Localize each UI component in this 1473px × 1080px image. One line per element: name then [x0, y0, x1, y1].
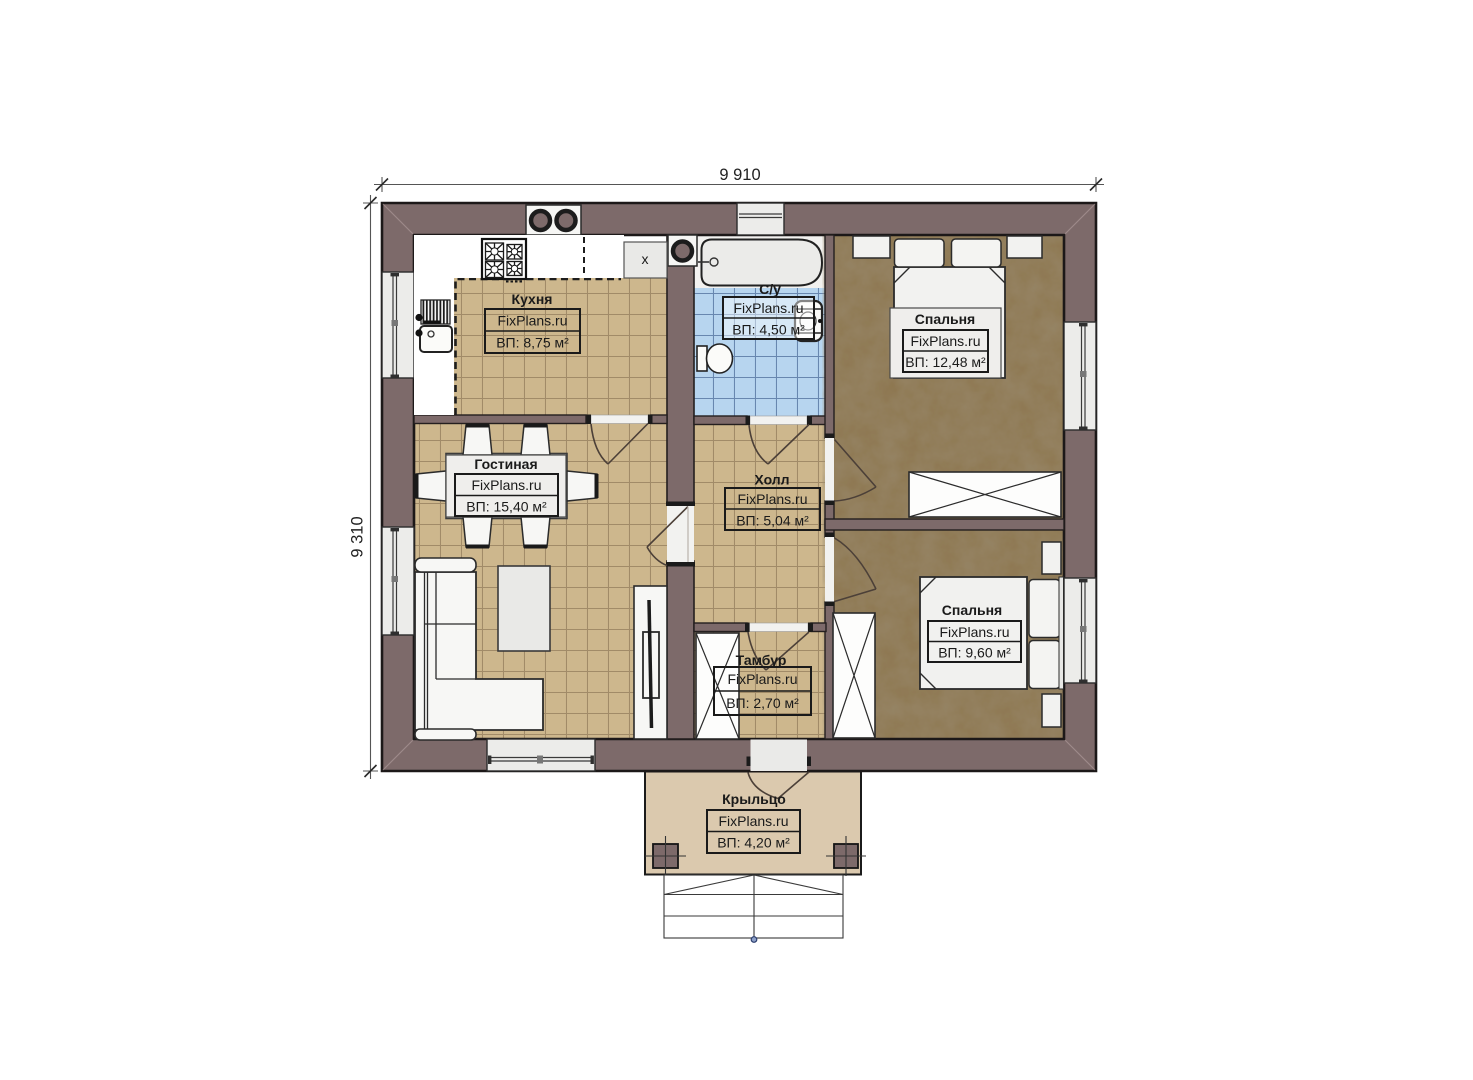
svg-text:9 310: 9 310 [349, 516, 367, 557]
svg-text:ВП: 4,20 м²: ВП: 4,20 м² [717, 835, 790, 851]
svg-text:Гостиная: Гостиная [474, 456, 537, 472]
svg-text:FixPlans.ru: FixPlans.ru [939, 624, 1009, 640]
svg-text:FixPlans.ru: FixPlans.ru [497, 313, 567, 329]
svg-text:Тамбур: Тамбур [736, 652, 787, 668]
svg-text:x: x [642, 251, 649, 267]
svg-text:ВП: 8,75 м²: ВП: 8,75 м² [496, 335, 569, 351]
svg-text:С/у: С/у [759, 281, 781, 297]
svg-text:FixPlans.ru: FixPlans.ru [718, 813, 788, 829]
svg-text:ВП: 9,60 м²: ВП: 9,60 м² [938, 645, 1011, 661]
svg-text:ВП: 5,04 м²: ВП: 5,04 м² [736, 513, 809, 529]
svg-text:ВП: 12,48 м²: ВП: 12,48 м² [905, 354, 986, 370]
svg-text:Спальня: Спальня [942, 602, 1002, 618]
svg-text:Кухня: Кухня [512, 291, 553, 307]
svg-text:ВП: 15,40 м²: ВП: 15,40 м² [466, 499, 547, 515]
svg-text:FixPlans.ru: FixPlans.ru [910, 333, 980, 349]
svg-text:Спальня: Спальня [915, 311, 975, 327]
svg-text:FixPlans.ru: FixPlans.ru [737, 491, 807, 507]
svg-text:ВП: 4,50 м²: ВП: 4,50 м² [732, 322, 805, 338]
svg-text:FixPlans.ru: FixPlans.ru [727, 671, 797, 687]
svg-text:Холл: Холл [754, 472, 789, 488]
svg-text:Крыльцо: Крыльцо [722, 791, 786, 807]
svg-text:FixPlans.ru: FixPlans.ru [471, 477, 541, 493]
svg-text:9 910: 9 910 [719, 166, 760, 184]
svg-text:ВП: 2,70 м²: ВП: 2,70 м² [726, 695, 799, 711]
svg-text:FixPlans.ru: FixPlans.ru [733, 300, 803, 316]
